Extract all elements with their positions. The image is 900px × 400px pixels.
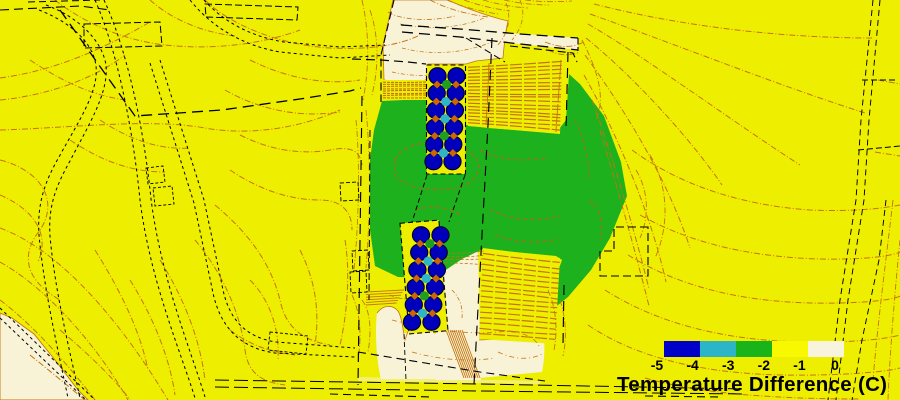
svg-text:-4: -4	[686, 357, 699, 373]
svg-text:-5: -5	[651, 357, 664, 373]
svg-text:0: 0	[831, 357, 839, 373]
svg-text:-1: -1	[793, 357, 806, 373]
svg-text:-3: -3	[722, 357, 735, 373]
svg-text:-2: -2	[758, 357, 771, 373]
svg-text:Temperature Difference (C): Temperature Difference (C)	[617, 373, 887, 396]
